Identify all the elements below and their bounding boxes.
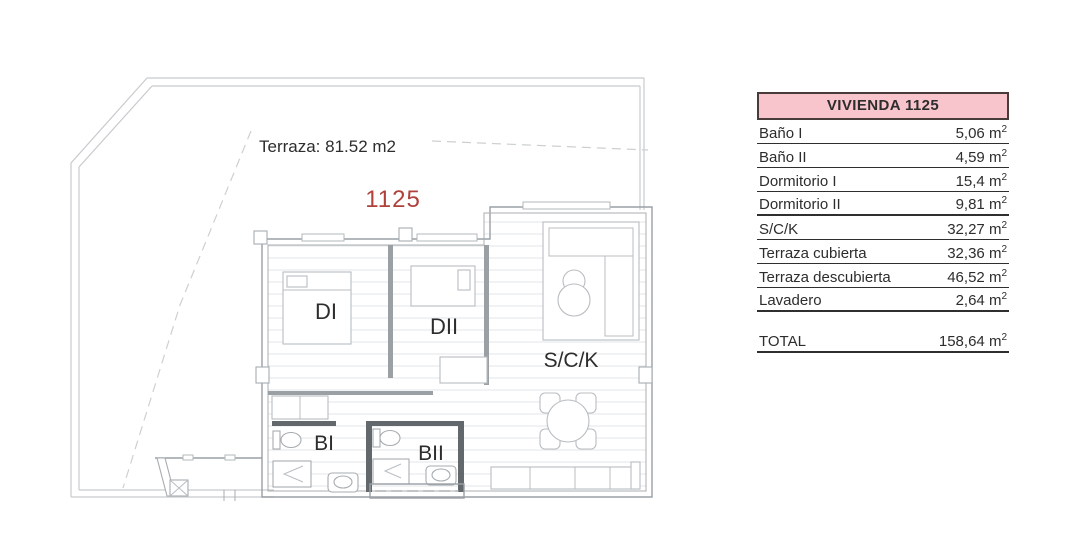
room-name: Baño II — [759, 149, 807, 166]
area-table: VIVIENDA 1125 Baño I 5,06 m2 Baño II 4,5… — [757, 92, 1009, 353]
total-area: 158,64 m2 — [939, 333, 1007, 350]
room-area: 2,64 m2 — [956, 292, 1007, 309]
room-area: 46,52 m2 — [947, 269, 1007, 286]
room-label-di: DI — [315, 299, 337, 324]
room-area: 5,06 m2 — [956, 125, 1007, 142]
floor-plan-drawing: Terraza: 81.52 m2 1125 DI DII S/C/K BI B… — [0, 0, 750, 559]
table-title: VIVIENDA 1125 — [757, 92, 1009, 120]
room-area: 4,59 m2 — [956, 149, 1007, 166]
room-name: Terraza cubierta — [759, 245, 867, 262]
room-area: 9,81 m2 — [956, 196, 1007, 213]
room-label-sck: S/C/K — [544, 349, 599, 372]
sofa — [543, 222, 639, 340]
table-row-lavadero: Lavadero 2,64 m2 — [757, 288, 1009, 312]
room-label-bi: BI — [314, 432, 334, 455]
room-label-dii: DII — [430, 314, 458, 339]
unit-number-label: 1125 — [365, 186, 421, 213]
table-row-terraza-descubierta: Terraza descubierta 46,52 m2 — [757, 264, 1009, 288]
table-row-total: TOTAL 158,64 m2 — [757, 327, 1009, 353]
room-name: Dormitorio II — [759, 196, 841, 213]
dining-table — [540, 393, 596, 449]
room-area: 32,27 m2 — [947, 221, 1007, 238]
corridor-wardrobe — [272, 396, 328, 419]
terrace-area-label: Terraza: 81.52 m2 — [259, 137, 396, 156]
table-row-bano1: Baño I 5,06 m2 — [757, 120, 1009, 144]
table-gap — [757, 312, 1009, 327]
room-name: Terraza descubierta — [759, 269, 891, 286]
floor-plan: Terraza: 81.52 m2 1125 DI DII S/C/K BI B… — [0, 0, 750, 559]
table-row-dormitorio2: Dormitorio II 9,81 m2 — [757, 192, 1009, 216]
table-row-sck: S/C/K 32,27 m2 — [757, 216, 1009, 240]
room-area: 15,4 m2 — [956, 173, 1007, 190]
room-name: Baño I — [759, 125, 802, 142]
terrace-railing — [155, 455, 262, 501]
room-area: 32,36 m2 — [947, 245, 1007, 262]
table-row-dormitorio1: Dormitorio I 15,4 m2 — [757, 168, 1009, 192]
total-label: TOTAL — [759, 333, 806, 350]
room-label-bii: BII — [418, 442, 444, 465]
table-row-terraza-cubierta: Terraza cubierta 32,36 m2 — [757, 240, 1009, 264]
room-name: Dormitorio I — [759, 173, 837, 190]
room-name: S/C/K — [759, 221, 798, 238]
table-row-bano2: Baño II 4,59 m2 — [757, 144, 1009, 168]
room-name: Lavadero — [759, 292, 822, 309]
